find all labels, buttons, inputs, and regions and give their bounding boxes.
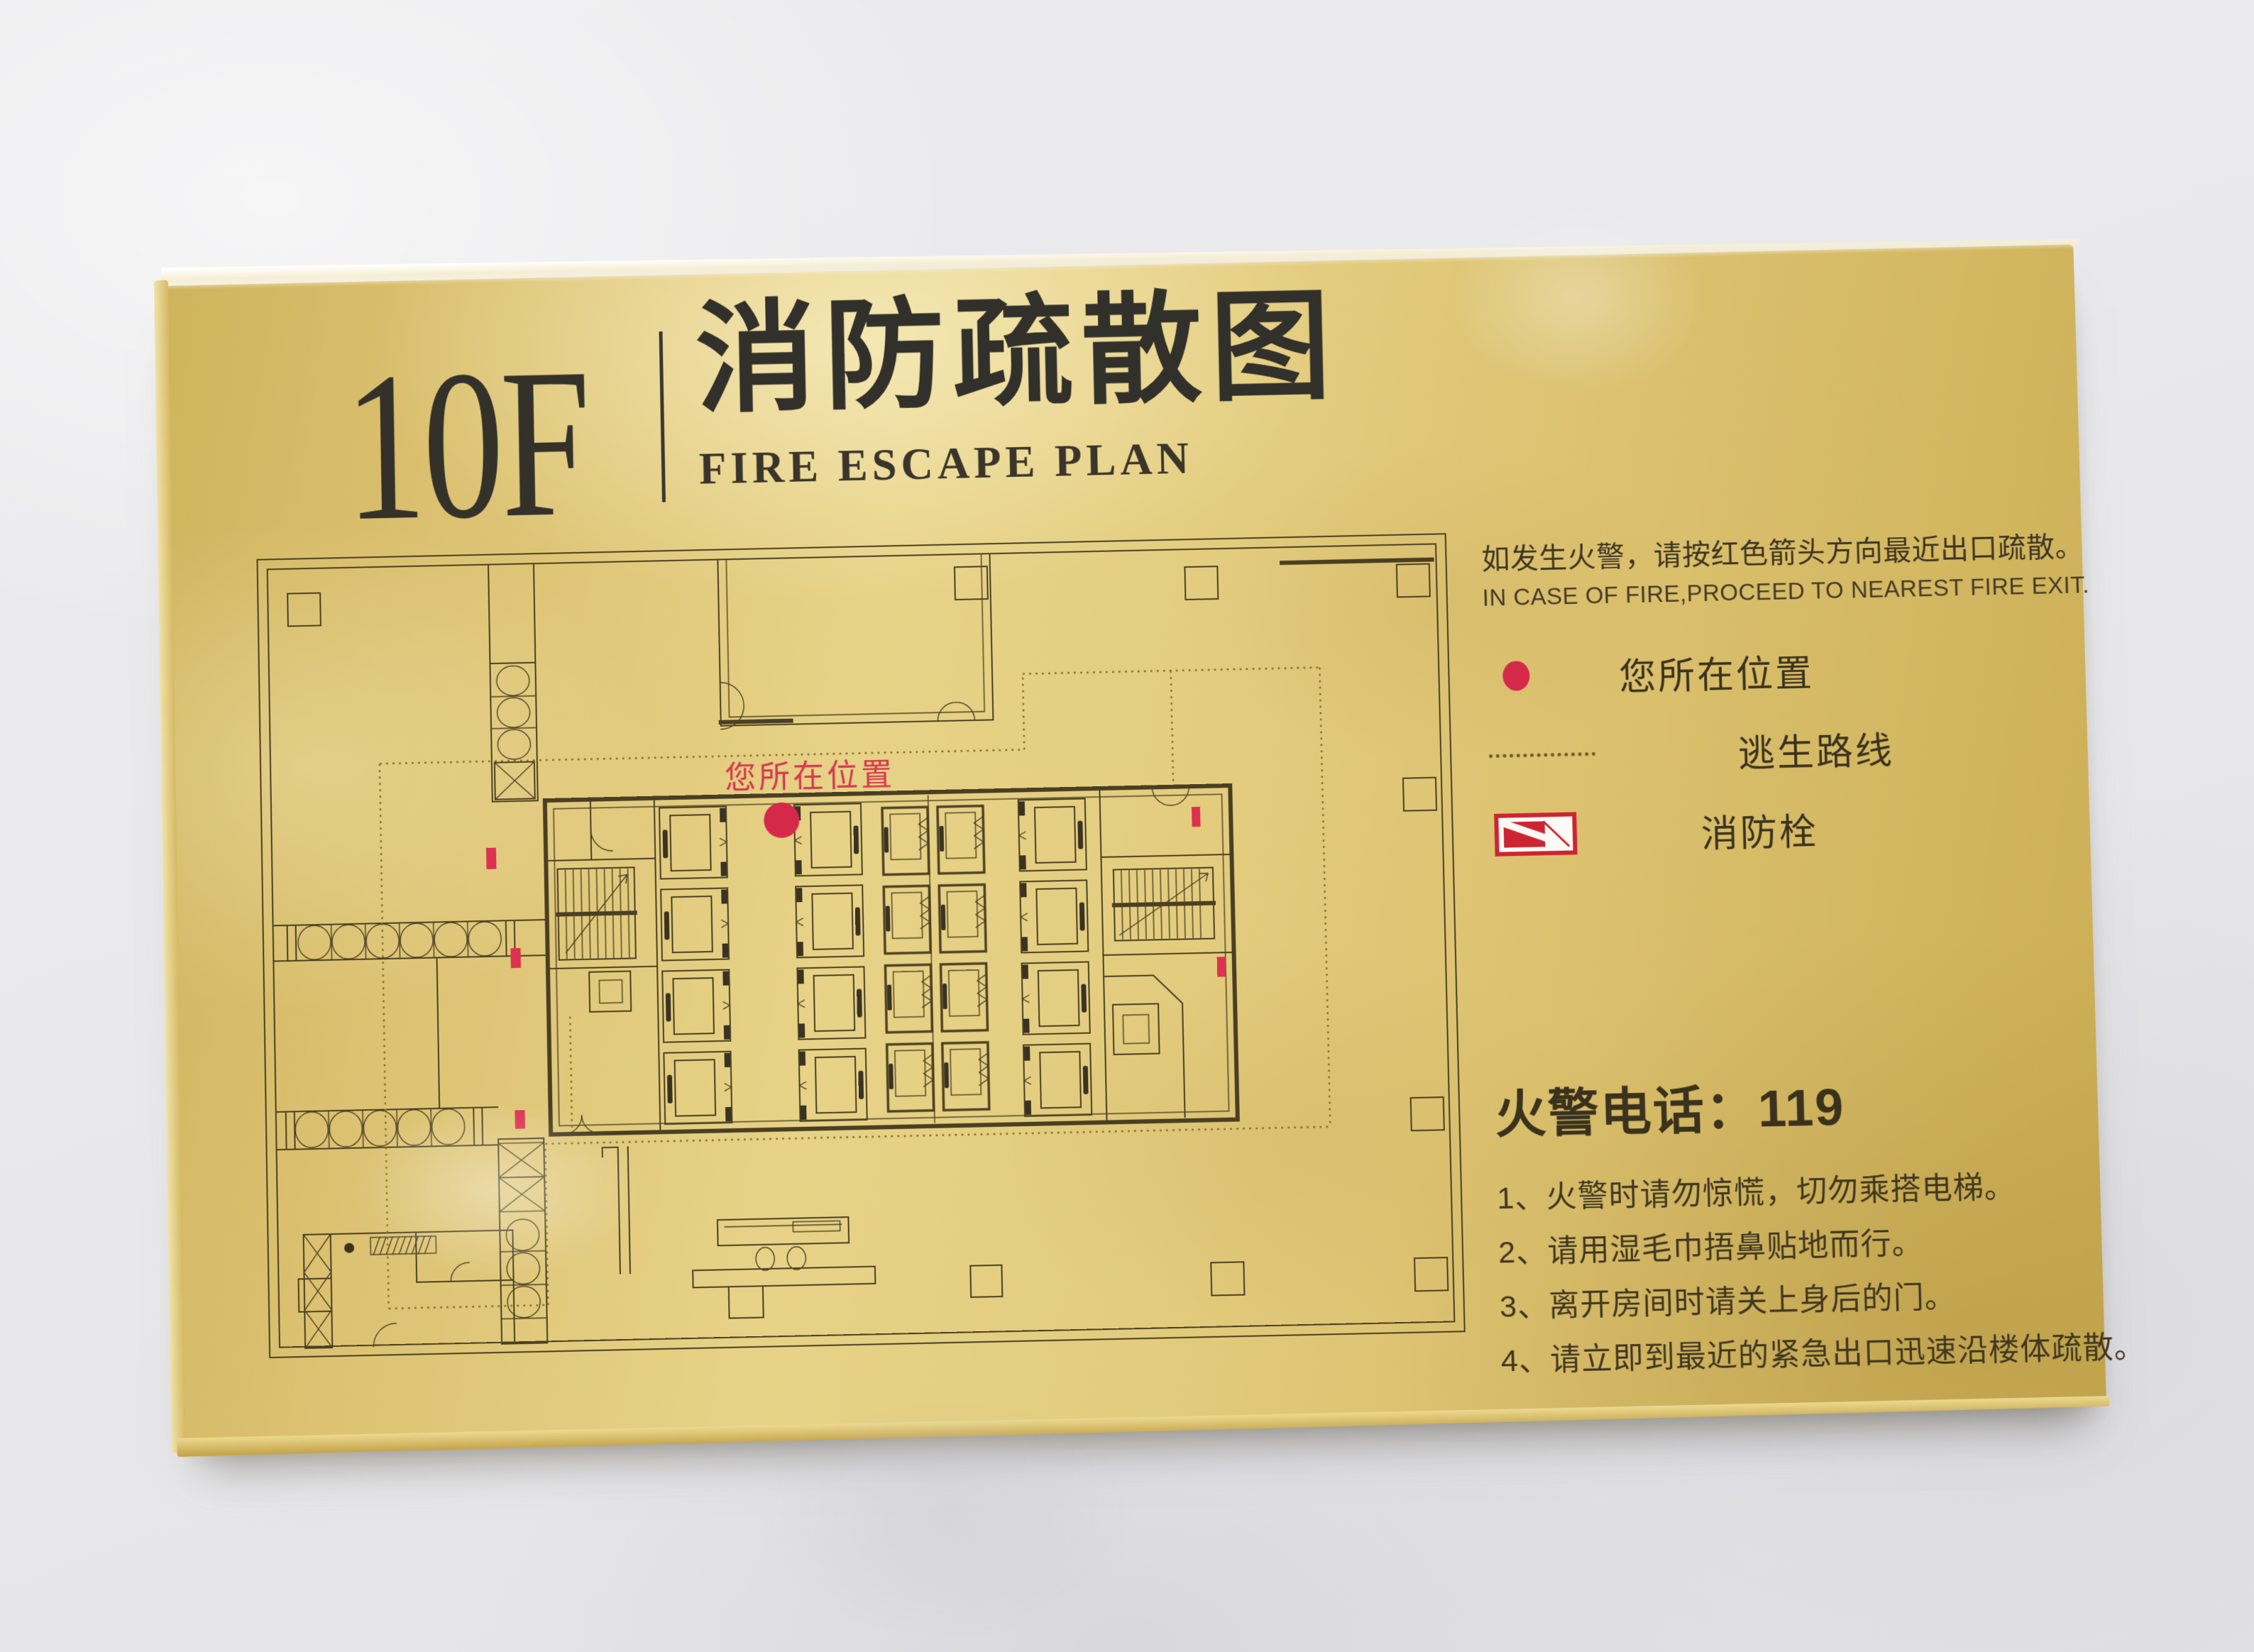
plan-duct-shaft-top	[488, 563, 538, 801]
instruction-chinese: 如发生火警，请按红色箭头方向最近出口疏散。	[1481, 523, 2091, 577]
legend-label-fire-hydrant: 消防栓	[1700, 801, 1819, 857]
you-are-here-map-label: 您所在位置	[725, 757, 896, 795]
floor-plan-drawing: 您所在位置	[253, 529, 1469, 1362]
escape-route-dotted-lines	[378, 668, 1334, 1309]
emergency-rules-list: 1、火警时请勿惊慌，切勿乘搭电梯。 2、请用湿毛巾捂鼻贴地而行。 3、离开房间时…	[1496, 1157, 2143, 1388]
legend-row-escape-route: 逃生路线	[1485, 703, 2097, 796]
stairs-right	[1114, 868, 1214, 941]
plaque-left-edge-bevel	[154, 280, 186, 1453]
floor-number-label: 10F	[343, 336, 590, 554]
fire-hydrant-markers	[485, 806, 1228, 1129]
legend-label-you-are-here: 您所在位置	[1618, 643, 1815, 700]
plan-left-corridor-lower	[275, 957, 498, 1150]
stairs-left	[558, 867, 636, 959]
plan-outer-boundary	[257, 534, 1464, 1358]
plan-left-corridor-upper	[275, 920, 548, 961]
elevator-bank-left	[659, 806, 732, 1124]
dotted-line-icon	[1489, 751, 1595, 757]
plaque-title-english: FIRE ESCAPE PLAN	[698, 433, 1194, 495]
emergency-rule-3: 3、离开房间时请关上身后的门。	[1499, 1266, 2141, 1334]
plaque-bottom-edge-bevel	[177, 1396, 2109, 1457]
legend-row-you-are-here: 您所在位置	[1483, 624, 2095, 716]
plaque-title-chinese: 消防疏散图	[695, 287, 1341, 421]
emergency-rule-2: 2、请用湿毛巾捂鼻贴地而行。	[1497, 1212, 2139, 1280]
plan-lobby-furniture	[692, 1213, 1003, 1318]
fire-hydrant-icon	[1493, 811, 1578, 857]
red-dot-icon	[1502, 661, 1530, 691]
you-are-here-marker	[764, 802, 800, 838]
legend-label-escape-route: 逃生路线	[1737, 720, 1895, 777]
plan-core-block	[545, 786, 1238, 1135]
wall-background: 10F 消防疏散图 FIRE ESCAPE PLAN	[0, 0, 2254, 1652]
map-legend: 您所在位置 逃生路线 消防栓	[1483, 624, 2099, 875]
plan-bottom-left-rooms	[302, 1147, 632, 1348]
emergency-rule-1: 1、火警时请勿惊慌，切勿乘搭电梯。	[1496, 1157, 2138, 1226]
fire-escape-plan-plaque: 10F 消防疏散图 FIRE ESCAPE PLAN	[165, 244, 2106, 1442]
emergency-rule-4: 4、请立即到最近的紧急出口迅速沿楼体疏散。	[1500, 1320, 2143, 1388]
legend-row-fire-hydrant: 消防栓	[1488, 782, 2100, 875]
elevator-column-far-right	[1018, 798, 1092, 1116]
instruction-english: IN CASE OF FIRE,PROCEED TO NEAREST FIRE …	[1482, 571, 2091, 612]
plan-column-squares	[287, 557, 1448, 1316]
plan-duct-shaft-bottom	[498, 1138, 547, 1344]
plaque-face: 10F 消防疏散图 FIRE ESCAPE PLAN	[165, 244, 2106, 1442]
core-middle-shafts	[882, 795, 989, 1124]
fire-phone-title: 火警电话：119	[1494, 1059, 2135, 1147]
emergency-info: 火警电话：119 1、火警时请勿惊慌，切勿乘搭电梯。 2、请用湿毛巾捂鼻贴地而行…	[1494, 1059, 2143, 1389]
header-divider-line	[659, 331, 666, 502]
plan-top-room	[718, 554, 993, 729]
elevator-bank-right	[794, 803, 867, 1121]
plaque-top-edge-highlight	[161, 226, 2081, 290]
fire-instruction-note: 如发生火警，请按红色箭头方向最近出口疏散。 IN CASE OF FIRE,PR…	[1481, 523, 2092, 611]
